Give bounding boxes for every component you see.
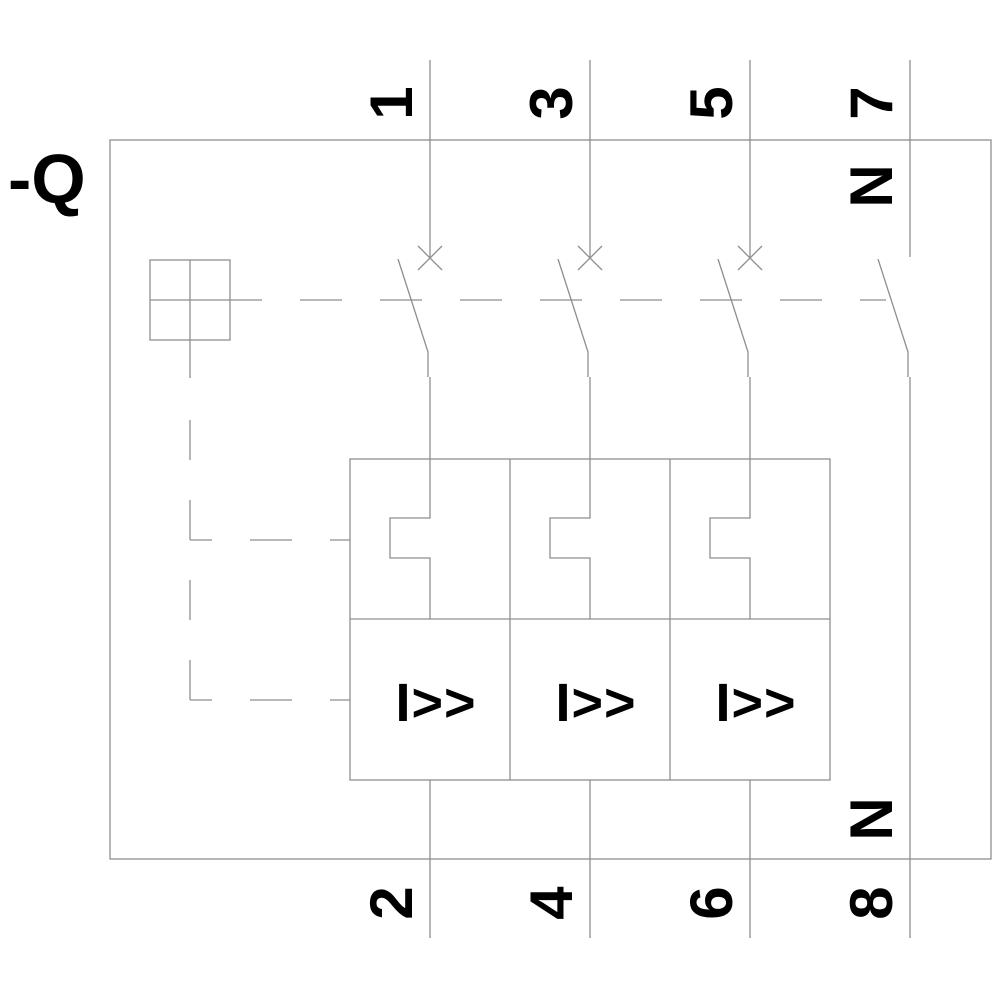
- thermal-release-path: [390, 377, 430, 619]
- magnetic-trip-label: I>>: [715, 673, 796, 733]
- switch-blade: [558, 259, 588, 377]
- linkage-dashed-lines: [190, 300, 886, 700]
- terminal-label-bottom-6: 6: [678, 886, 745, 919]
- switch-blade: [398, 259, 428, 377]
- terminal-label-bottom-2: 2: [358, 886, 425, 919]
- magnetic-trip-label: I>>: [395, 673, 476, 733]
- terminal-label-top-7: 7: [838, 86, 905, 119]
- switch-blade: [878, 259, 908, 377]
- schematic-labels: -Q 1 3 5 7 N I>> I>> I>> N 2 4 6 8: [8, 86, 905, 919]
- thermal-release-path: [710, 377, 750, 619]
- schematic-page: -Q 1 3 5 7 N I>> I>> I>> N 2 4 6 8: [0, 0, 1000, 1000]
- magnetic-trip-label: I>>: [555, 673, 636, 733]
- mechanism-square-icon: [150, 260, 262, 378]
- pole-2: [550, 60, 602, 938]
- circuit-breaker-schematic: -Q 1 3 5 7 N I>> I>> I>> N 2 4 6 8: [0, 0, 1000, 1000]
- neutral-label-bottom: N: [838, 797, 905, 840]
- thermal-release-path: [550, 377, 590, 619]
- neutral-label-top: N: [838, 164, 905, 207]
- pole-1: [390, 60, 442, 938]
- pole-3: [710, 60, 762, 938]
- terminal-label-top-3: 3: [518, 86, 585, 119]
- switch-blade: [718, 259, 748, 377]
- terminal-label-top-1: 1: [358, 86, 425, 119]
- enclosure-outline: [110, 140, 991, 859]
- terminal-label-bottom-4: 4: [518, 886, 585, 920]
- terminal-label-bottom-8: 8: [838, 886, 905, 919]
- terminal-label-top-5: 5: [678, 86, 745, 119]
- device-designation-label: -Q: [8, 140, 86, 218]
